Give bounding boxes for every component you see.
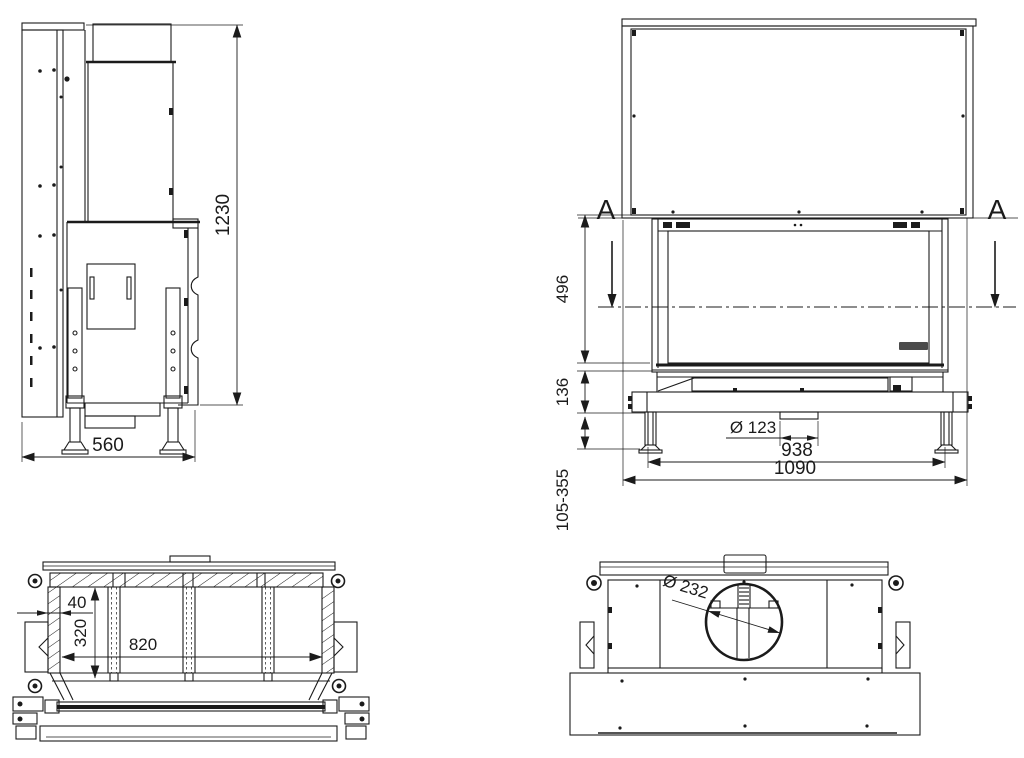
section-underframe [13,673,369,741]
dim-depth-label: 560 [92,435,124,456]
flue-spigot-tab [780,412,818,419]
dim-leg-range-label: 105-355 [553,469,572,531]
drawing-canvas: 560 1230 A A [0,0,1024,758]
caster-left [13,697,43,739]
dim-glass-height-label: 496 [553,275,572,303]
front-leg-right [935,412,958,453]
dim-flue-spigot-label: Ø 123 [730,418,776,437]
dim-height-label: 1230 [213,194,234,236]
section-letter-right: A [988,194,1007,225]
side-leg-left [62,288,88,454]
brand-logo [899,342,928,350]
dim-leg-range-105-355: 105-355 [553,417,640,531]
section-marker-left: A [578,194,650,308]
side-fastener-dots [30,68,70,387]
dim-overall-width-label: 1090 [774,458,816,479]
front-glass [668,231,929,363]
dim-glass-height-496: 496 [553,215,650,363]
dim-height-1230: 1230 [86,25,243,405]
dim-flue-diameter-label: Ø 232 [661,571,711,603]
section-baffle-strips [108,587,274,681]
top-base [570,668,920,735]
side-view: 560 1230 [22,23,243,462]
section-letter-left: A [597,194,616,225]
technical-drawing: 560 1230 A A [0,0,1024,758]
dim-wall-label: 40 [68,593,87,612]
front-ash-tray [657,372,943,392]
top-view: Ø 232 [570,555,920,735]
section-marker-right: A [973,194,1018,308]
side-leg-right [160,288,186,454]
caster-right [339,697,369,739]
dim-base-height-label: 136 [553,378,572,406]
front-firebox [652,219,948,372]
dim-inner-depth-label: 320 [71,619,90,647]
front-view: A A [553,19,1018,531]
section-view: 40 320 820 [13,556,369,741]
side-access-door [87,264,135,329]
dim-chamber-width-label: 820 [129,635,157,654]
front-base [628,392,972,419]
dim-inner-width-820: 820 [62,635,322,657]
front-leg-left [639,412,662,453]
